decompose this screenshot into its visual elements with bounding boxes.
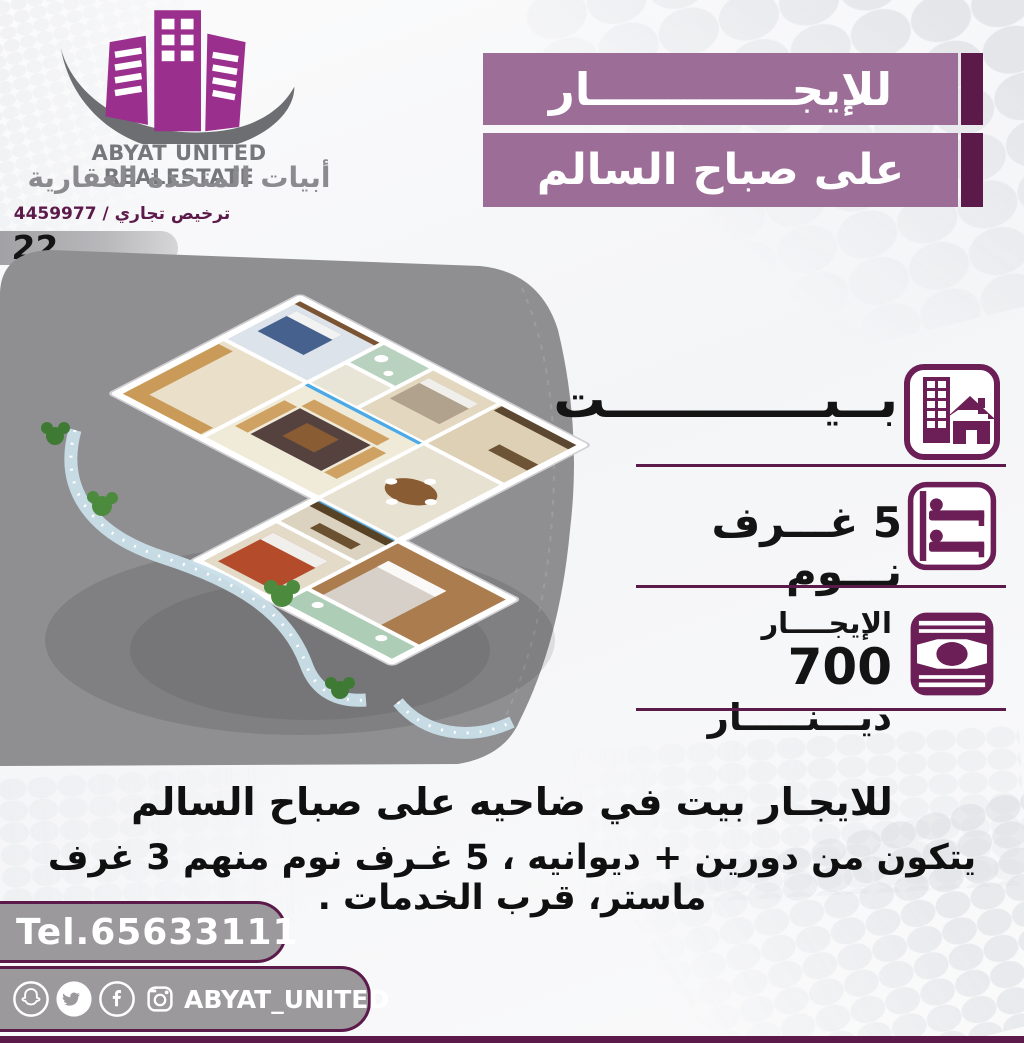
banner-cap-2 <box>961 133 983 207</box>
feature-divider-1 <box>636 464 1006 467</box>
building-house-icon <box>902 362 1002 462</box>
feature-bedrooms-label: 5 غـــرف نـــوم <box>630 498 902 596</box>
flyer-page: ABYAT UNITED REALESTATE أبيات المتحدة ال… <box>0 0 1024 1043</box>
banner-for-rent: للإيجـــــــــــــار <box>483 53 958 125</box>
rent-unit: ديـــنـــــار <box>708 696 892 739</box>
bottom-accent-strip <box>0 1036 1024 1043</box>
phone-number: Tel.65633111 <box>16 912 299 953</box>
description-line-1: للايجـار بيت في ضاحيه على صباح السالم <box>0 780 1024 824</box>
company-logo <box>34 6 334 144</box>
feature-rent-title: الإيجــــار <box>630 606 892 640</box>
rent-value: 700 <box>788 638 892 696</box>
buildings-icon <box>105 10 245 131</box>
twitter-icon[interactable] <box>55 980 93 1018</box>
feature-house-label: بــيــــــــــــت <box>630 370 898 430</box>
banner-location: على صباح السالم <box>483 133 958 207</box>
bunk-beds-icon <box>906 480 998 572</box>
floorplan-illustration <box>0 240 600 780</box>
social-bar: ABYAT_UNITED <box>0 966 371 1032</box>
instagram-icon[interactable] <box>141 980 179 1018</box>
facebook-icon[interactable] <box>98 980 136 1018</box>
brand-name-arabic: أبيات المتحدة العقارية <box>18 161 340 194</box>
banner-cap-1 <box>961 53 983 125</box>
phone-button[interactable]: Tel.65633111 <box>0 901 287 963</box>
feature-rent-amount: 700 ديـــنـــــار <box>630 638 892 739</box>
social-handle: ABYAT_UNITED <box>184 985 389 1014</box>
money-icon <box>906 608 998 700</box>
feature-divider-2 <box>636 585 1006 588</box>
license-number: ترخيص تجاري / 4459977 <box>6 204 238 224</box>
snapchat-icon[interactable] <box>12 980 50 1018</box>
feature-divider-3 <box>636 708 1006 711</box>
